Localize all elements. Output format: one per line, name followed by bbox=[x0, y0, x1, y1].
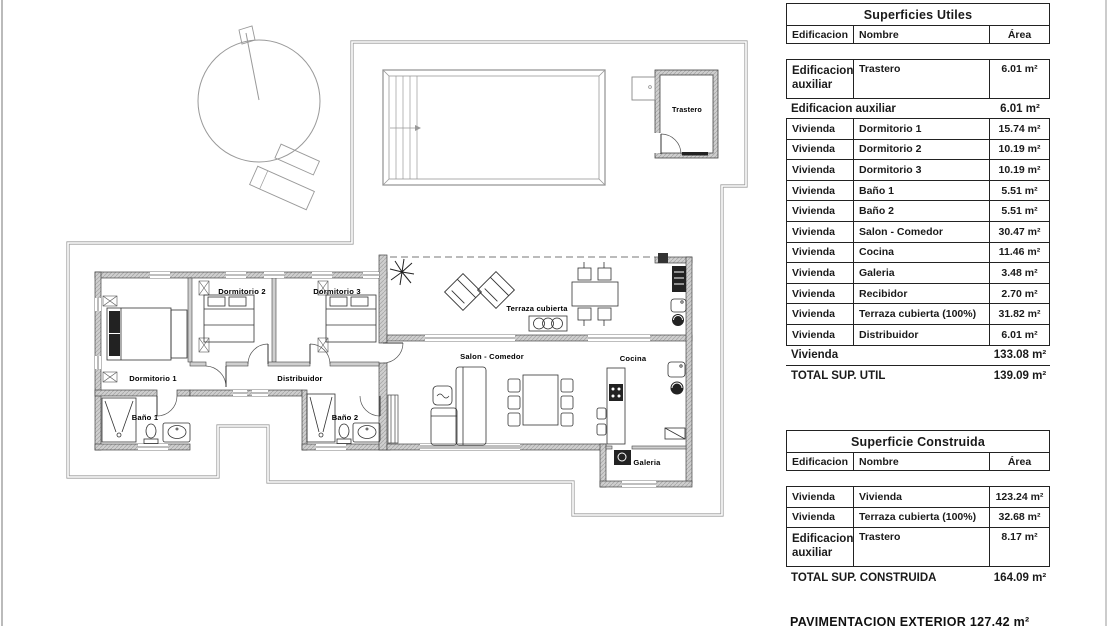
cell-nombre: Cocina bbox=[853, 243, 989, 263]
cell-nombre: Recibidor bbox=[853, 284, 989, 304]
cell-nombre: Trastero bbox=[853, 60, 989, 98]
table-row: Vivienda Salon - Comedor 30.47 m² bbox=[787, 221, 1049, 242]
cell-edificacion: Vivienda bbox=[787, 181, 853, 201]
cell-nombre: Dormitorio 3 bbox=[853, 160, 989, 180]
side-table-plant bbox=[433, 386, 452, 405]
pool-steps bbox=[390, 76, 417, 179]
cell-area: 5.51 m² bbox=[989, 201, 1049, 221]
total-area: 139.09 m² bbox=[990, 366, 1050, 387]
cell-edificacion: Edificacion auxiliar bbox=[787, 528, 853, 566]
cell-edificacion: Vivienda bbox=[787, 140, 853, 160]
total-row: TOTAL SUP. UTIL 139.09 m² bbox=[786, 366, 1050, 387]
house-exterior-walls bbox=[95, 255, 692, 487]
table-title: Superficies Utiles bbox=[786, 3, 1050, 26]
trastero-annex bbox=[632, 77, 655, 100]
cell-nombre: Baño 2 bbox=[853, 201, 989, 221]
vivienda-rows-box: Vivienda Dormitorio 1 15.74 m² Vivienda … bbox=[786, 119, 1050, 346]
table-header-row: Edificacion Nombre Área bbox=[786, 453, 1050, 471]
cell-nombre: Terraza cubierta (100%) bbox=[853, 508, 989, 528]
cell-area: 32.68 m² bbox=[989, 508, 1049, 528]
header-edificacion: Edificacion bbox=[787, 453, 853, 470]
subtotal-label: Edificacion auxiliar bbox=[786, 99, 990, 118]
trastero-building bbox=[632, 70, 718, 158]
terrace-lounge-chair bbox=[445, 274, 482, 311]
room-label-bano2: Baño 2 bbox=[332, 413, 359, 422]
subtotal-area: 133.08 m² bbox=[990, 346, 1050, 365]
table-row: Vivienda Terraza cubierta (100%) 32.68 m… bbox=[787, 507, 1049, 528]
dining-table bbox=[508, 375, 573, 426]
table-row: Vivienda Dormitorio 3 10.19 m² bbox=[787, 159, 1049, 180]
table-row: Edificacion auxiliar Trastero 8.17 m² bbox=[787, 527, 1049, 566]
cell-area: 8.17 m² bbox=[989, 528, 1049, 566]
table-row: Vivienda Dormitorio 2 10.19 m² bbox=[787, 139, 1049, 160]
kitchen-sink-fridge bbox=[665, 362, 685, 439]
cell-area: 123.24 m² bbox=[989, 487, 1049, 507]
interior-partitions bbox=[188, 278, 686, 449]
washing-machine bbox=[614, 450, 631, 465]
terrace-dining-set bbox=[572, 262, 618, 326]
room-label-terraza: Terraza cubierta bbox=[506, 304, 568, 313]
table-row: Edificacion auxiliar Trastero 6.01 m² bbox=[787, 60, 1049, 98]
table-row: Vivienda Baño 1 5.51 m² bbox=[787, 180, 1049, 201]
bed-dormitorio3 bbox=[326, 295, 376, 342]
cell-edificacion: Vivienda bbox=[787, 325, 853, 345]
pool bbox=[383, 70, 605, 185]
cell-nombre: Terraza cubierta (100%) bbox=[853, 304, 989, 324]
table-row: Vivienda Cocina 11.46 m² bbox=[787, 242, 1049, 263]
header-nombre: Nombre bbox=[853, 453, 989, 470]
cell-edificacion: Vivienda bbox=[787, 263, 853, 283]
cell-nombre: Vivienda bbox=[853, 487, 989, 507]
cell-edificacion: Vivienda bbox=[787, 243, 853, 263]
salon-side-glazing bbox=[388, 395, 398, 443]
subtotal-area: 6.01 m² bbox=[990, 99, 1050, 118]
table-row: Vivienda Terraza cubierta (100%) 31.82 m… bbox=[787, 303, 1049, 324]
sun-lounger bbox=[250, 166, 315, 209]
total-label: TOTAL SUP. UTIL bbox=[786, 366, 990, 387]
cell-nombre: Galeria bbox=[853, 263, 989, 283]
floorplan-sheet: Trastero Dormitorio 1 Dormitorio 2 Dormi… bbox=[0, 0, 1110, 626]
terrace-lounge-chair bbox=[478, 272, 515, 309]
closet-marks bbox=[103, 281, 328, 382]
cell-area: 15.74 m² bbox=[989, 119, 1049, 139]
bed-dormitorio1 bbox=[107, 308, 187, 360]
table-header-row: Edificacion Nombre Área bbox=[786, 26, 1050, 44]
cell-area: 11.46 m² bbox=[989, 243, 1049, 263]
cell-edificacion: Vivienda bbox=[787, 508, 853, 528]
room-label-dormitorio1: Dormitorio 1 bbox=[129, 374, 177, 383]
room-label-salon: Salon - Comedor bbox=[460, 352, 524, 361]
header-area: Área bbox=[989, 26, 1049, 43]
cell-nombre: Salon - Comedor bbox=[853, 222, 989, 242]
total-area: 164.09 m² bbox=[990, 567, 1050, 588]
header-nombre: Nombre bbox=[853, 26, 989, 43]
room-label-bano1: Baño 1 bbox=[132, 413, 159, 422]
cell-edificacion: Vivienda bbox=[787, 284, 853, 304]
table-title: Superficie Construida bbox=[786, 430, 1050, 453]
cell-area: 31.82 m² bbox=[989, 304, 1049, 324]
cell-edificacion: Vivienda bbox=[787, 304, 853, 324]
aux-row-box: Edificacion auxiliar Trastero 6.01 m² bbox=[786, 59, 1050, 99]
terrace-sink bbox=[671, 299, 686, 326]
room-label-trastero: Trastero bbox=[672, 105, 702, 114]
cell-edificacion: Vivienda bbox=[787, 119, 853, 139]
room-label-cocina: Cocina bbox=[620, 354, 647, 363]
table-row: Vivienda Distribuidor 6.01 m² bbox=[787, 324, 1049, 345]
cell-area: 6.01 m² bbox=[989, 60, 1049, 98]
table-superficie-construida: Superficie Construida Edificacion Nombre… bbox=[786, 430, 1050, 588]
table-superficies-utiles: Superficies Utiles Edificacion Nombre Ár… bbox=[786, 3, 1050, 387]
terrace-pillar bbox=[658, 253, 668, 263]
table-row: Vivienda Baño 2 5.51 m² bbox=[787, 200, 1049, 221]
room-label-dormitorio3: Dormitorio 3 bbox=[313, 287, 361, 296]
construida-rows-box: Vivienda Vivienda 123.24 m² Vivienda Ter… bbox=[786, 486, 1050, 567]
room-label-distribuidor: Distribuidor bbox=[277, 374, 322, 383]
header-area: Área bbox=[989, 453, 1049, 470]
sofa bbox=[431, 367, 486, 445]
cell-area: 30.47 m² bbox=[989, 222, 1049, 242]
subtotal-label: Vivienda bbox=[786, 346, 990, 365]
cell-edificacion: Edificacion auxiliar bbox=[787, 60, 853, 98]
pavimentacion-note: PAVIMENTACION EXTERIOR 127.42 m² bbox=[790, 615, 1030, 626]
kitchen-island bbox=[597, 368, 625, 444]
cell-nombre: Dormitorio 2 bbox=[853, 140, 989, 160]
cell-area: 10.19 m² bbox=[989, 160, 1049, 180]
room-label-dormitorio2: Dormitorio 2 bbox=[218, 287, 266, 296]
cell-area: 10.19 m² bbox=[989, 140, 1049, 160]
terrace-bbq bbox=[529, 316, 567, 331]
total-row: TOTAL SUP. CONSTRUIDA 164.09 m² bbox=[786, 567, 1050, 588]
header-edificacion: Edificacion bbox=[787, 26, 853, 43]
cell-edificacion: Vivienda bbox=[787, 222, 853, 242]
plant-icon bbox=[390, 259, 414, 285]
room-label-galeria: Galeria bbox=[633, 458, 661, 467]
cell-edificacion: Vivienda bbox=[787, 487, 853, 507]
subtotal-row: Vivienda 133.08 m² bbox=[786, 346, 1050, 366]
table-row: Vivienda Dormitorio 1 15.74 m² bbox=[787, 119, 1049, 139]
cell-area: 5.51 m² bbox=[989, 181, 1049, 201]
cell-area: 3.48 m² bbox=[989, 263, 1049, 283]
total-label: TOTAL SUP. CONSTRUIDA bbox=[786, 567, 990, 588]
table-row: Vivienda Recibidor 2.70 m² bbox=[787, 283, 1049, 304]
cell-area: 2.70 m² bbox=[989, 284, 1049, 304]
bed-dormitorio2 bbox=[204, 295, 254, 342]
table-row: Vivienda Galeria 3.48 m² bbox=[787, 262, 1049, 283]
cell-area: 6.01 m² bbox=[989, 325, 1049, 345]
subtotal-row: Edificacion auxiliar 6.01 m² bbox=[786, 99, 1050, 119]
trastero-window bbox=[682, 152, 708, 156]
cell-nombre: Baño 1 bbox=[853, 181, 989, 201]
cell-nombre: Dormitorio 1 bbox=[853, 119, 989, 139]
cell-nombre: Trastero bbox=[853, 528, 989, 566]
cell-edificacion: Vivienda bbox=[787, 160, 853, 180]
pool-arrow bbox=[415, 125, 421, 131]
garden-umbrella bbox=[198, 26, 320, 162]
cell-nombre: Distribuidor bbox=[853, 325, 989, 345]
table-row: Vivienda Vivienda 123.24 m² bbox=[787, 487, 1049, 507]
trastero-door-opening bbox=[654, 133, 661, 153]
bbq-nook bbox=[672, 266, 686, 292]
cell-edificacion: Vivienda bbox=[787, 201, 853, 221]
